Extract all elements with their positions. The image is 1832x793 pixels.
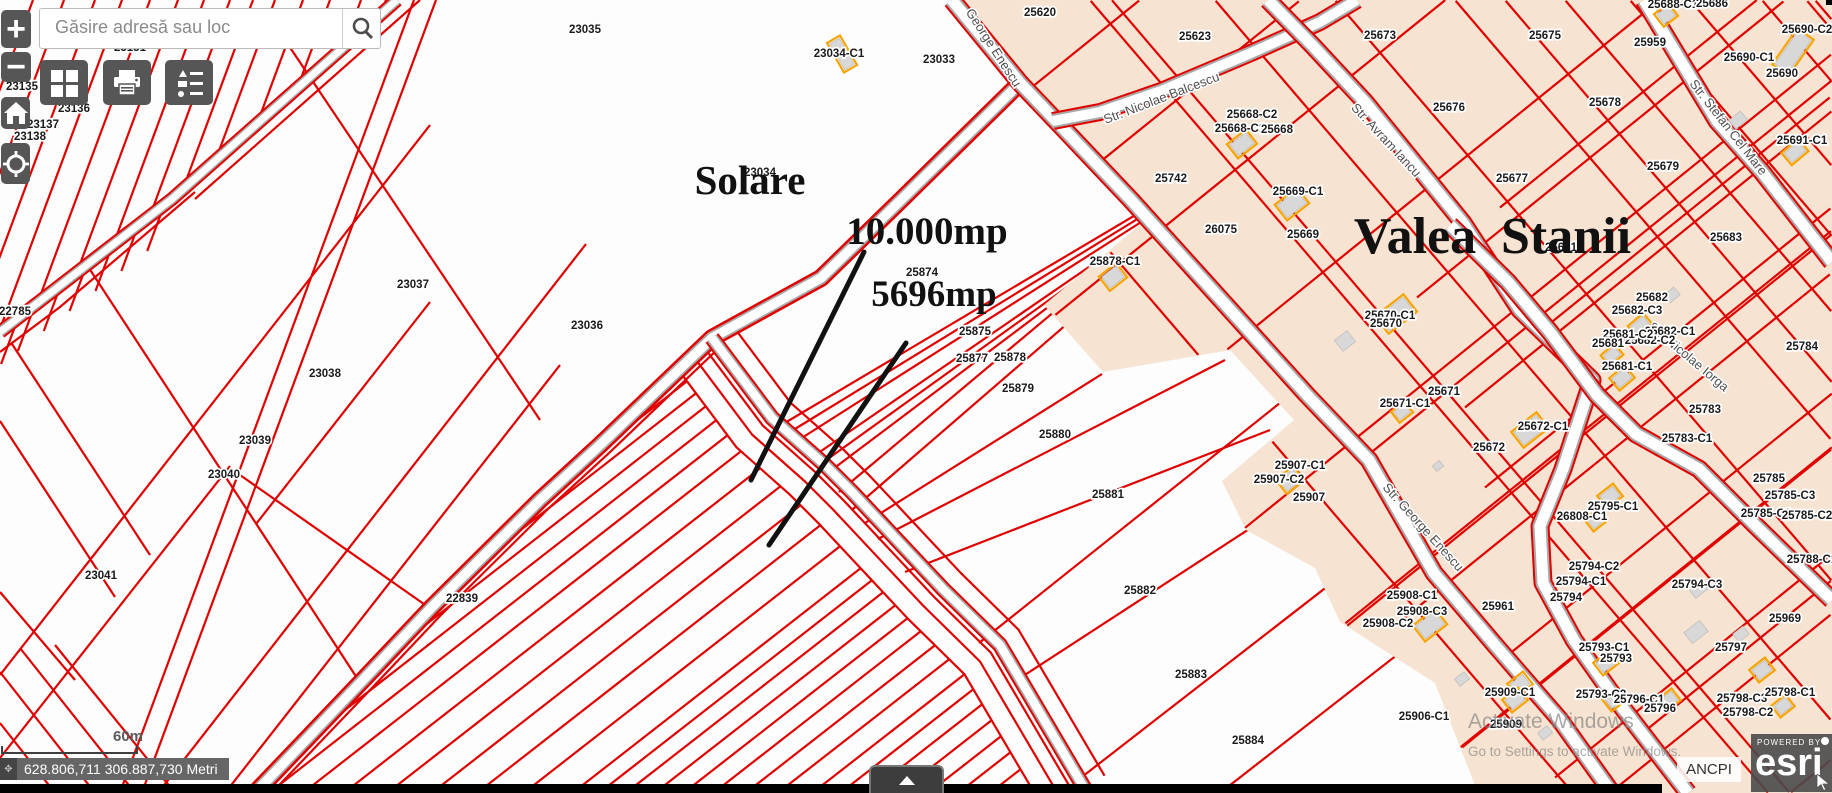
svg-text:23036: 23036 (571, 320, 603, 332)
svg-text:25908-C1: 25908-C1 (1387, 590, 1438, 602)
svg-text:25690-C2: 25690-C2 (1782, 24, 1832, 36)
svg-text:Solare: Solare (695, 157, 806, 203)
svg-text:25683: 25683 (1710, 232, 1742, 244)
svg-text:23137: 23137 (27, 119, 59, 131)
svg-text:23040: 23040 (208, 469, 240, 481)
svg-text:25672-C1: 25672-C1 (1518, 421, 1569, 433)
svg-text:25671-C1: 25671-C1 (1380, 398, 1431, 410)
svg-text:25884: 25884 (1232, 735, 1265, 747)
svg-text:25679: 25679 (1647, 161, 1679, 173)
svg-text:25690-C1: 25690-C1 (1724, 52, 1775, 64)
svg-text:25877: 25877 (956, 353, 988, 365)
svg-text:25784: 25784 (1786, 341, 1819, 353)
svg-text:25668-C1: 25668-C1 (1215, 123, 1266, 135)
svg-text:25969: 25969 (1769, 613, 1801, 625)
svg-text:25678: 25678 (1589, 97, 1622, 109)
svg-text:25907: 25907 (1293, 492, 1325, 504)
svg-text:25669-C1: 25669-C1 (1273, 186, 1324, 198)
svg-text:25909-C1: 25909-C1 (1485, 687, 1536, 699)
svg-text:25908-C2: 25908-C2 (1363, 618, 1414, 630)
svg-text:25671: 25671 (1428, 386, 1461, 398)
svg-text:25882: 25882 (1124, 585, 1156, 597)
svg-text:25907-C2: 25907-C2 (1254, 474, 1305, 486)
svg-text:25881: 25881 (1092, 489, 1125, 501)
svg-text:25798-C2: 25798-C2 (1723, 707, 1774, 719)
svg-text:25906-C1: 25906-C1 (1399, 711, 1450, 723)
svg-text:25959: 25959 (1634, 37, 1666, 49)
svg-text:25883: 25883 (1175, 669, 1207, 681)
svg-text:25794-C3: 25794-C3 (1672, 579, 1723, 591)
svg-text:25681-C1: 25681-C1 (1602, 361, 1653, 373)
svg-text:25688-C1: 25688-C1 (1648, 0, 1699, 11)
svg-text:25875: 25875 (959, 326, 992, 338)
svg-text:25673: 25673 (1364, 30, 1396, 42)
svg-text:25794-C2: 25794-C2 (1569, 561, 1620, 573)
svg-text:25798-C1: 25798-C1 (1765, 687, 1816, 699)
svg-text:25623: 25623 (1179, 31, 1211, 43)
svg-text:25785-C3: 25785-C3 (1765, 490, 1816, 502)
svg-text:25690: 25690 (1766, 68, 1798, 80)
svg-text:25691-C1: 25691-C1 (1777, 135, 1828, 147)
svg-text:25670: 25670 (1370, 318, 1402, 330)
svg-text:25682-C3: 25682-C3 (1612, 305, 1663, 317)
svg-text:26808-C1: 26808-C1 (1557, 511, 1608, 523)
svg-text:23034-C1: 23034-C1 (814, 48, 865, 60)
svg-text:22785: 22785 (0, 306, 32, 318)
svg-text:23038: 23038 (309, 368, 342, 380)
svg-text:25907-C1: 25907-C1 (1275, 460, 1326, 472)
svg-text:25908-C3: 25908-C3 (1397, 606, 1448, 618)
svg-text:25878-C1: 25878-C1 (1090, 256, 1141, 268)
svg-text:25676: 25676 (1433, 102, 1465, 114)
svg-text:25878: 25878 (994, 352, 1027, 364)
svg-text:25798-C3: 25798-C3 (1717, 693, 1768, 705)
svg-text:25686: 25686 (1696, 0, 1728, 10)
svg-text:22839: 22839 (446, 593, 478, 605)
svg-text:26075: 26075 (1205, 224, 1238, 236)
svg-text:25669: 25669 (1287, 229, 1319, 241)
svg-text:23041: 23041 (85, 570, 118, 582)
svg-text:25668: 25668 (1261, 124, 1294, 136)
svg-text:25668-C2: 25668-C2 (1227, 109, 1278, 121)
svg-text:25783: 25783 (1689, 404, 1721, 416)
svg-text:Valea: Valea (1354, 208, 1476, 265)
svg-text:25788-C1: 25788-C1 (1787, 554, 1832, 566)
svg-text:25742: 25742 (1155, 173, 1187, 185)
svg-text:10.000mp: 10.000mp (846, 210, 1007, 253)
svg-text:25672: 25672 (1473, 442, 1505, 454)
svg-text:25797: 25797 (1715, 642, 1747, 654)
svg-text:23035: 23035 (569, 24, 602, 36)
svg-text:5696mp: 5696mp (871, 274, 996, 315)
svg-text:25879: 25879 (1002, 383, 1034, 395)
svg-text:25675: 25675 (1529, 30, 1562, 42)
svg-text:25682: 25682 (1636, 292, 1668, 304)
svg-text:23033: 23033 (923, 54, 955, 66)
svg-text:25793: 25793 (1600, 653, 1632, 665)
svg-text:25783-C1: 25783-C1 (1662, 433, 1713, 445)
svg-text:25620: 25620 (1024, 7, 1056, 19)
svg-text:25785: 25785 (1753, 473, 1786, 485)
svg-text:25677: 25677 (1496, 173, 1528, 185)
svg-text:25794-C1: 25794-C1 (1556, 576, 1607, 588)
svg-text:25796: 25796 (1644, 703, 1676, 715)
svg-text:25961: 25961 (1482, 601, 1515, 613)
svg-text:25794: 25794 (1550, 592, 1583, 604)
svg-text:23039: 23039 (239, 435, 271, 447)
svg-text:Stanii: Stanii (1501, 208, 1631, 265)
svg-text:25880: 25880 (1039, 429, 1071, 441)
svg-text:23037: 23037 (397, 279, 429, 291)
svg-text:25681: 25681 (1592, 338, 1625, 350)
svg-text:23138: 23138 (14, 131, 47, 143)
svg-text:25785-C2: 25785-C2 (1782, 510, 1832, 522)
